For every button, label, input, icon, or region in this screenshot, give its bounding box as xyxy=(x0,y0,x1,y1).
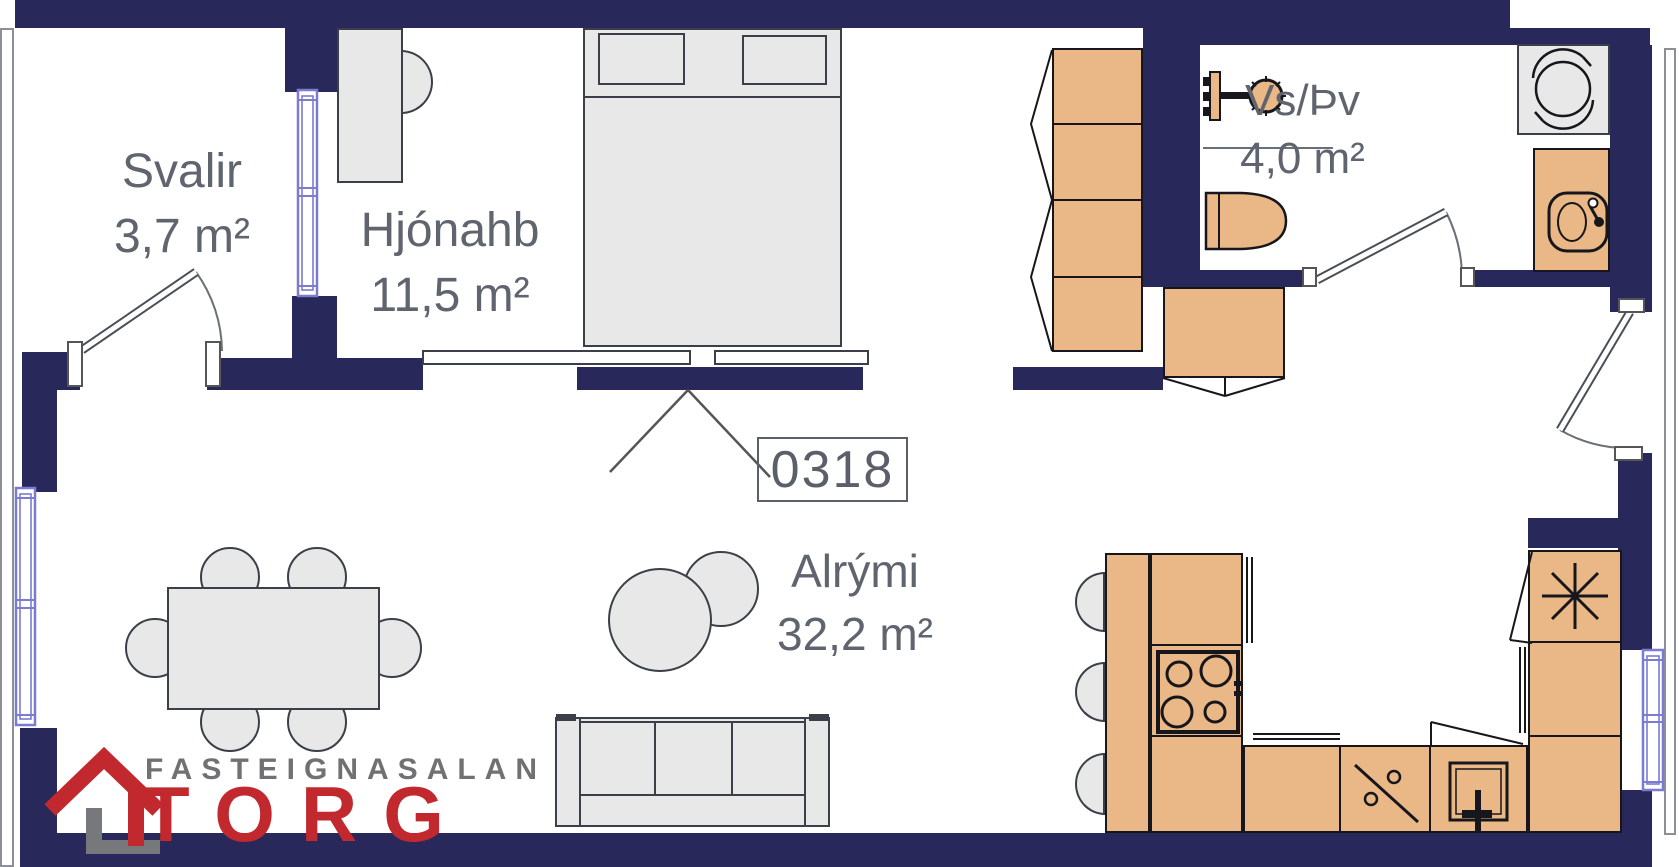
window-icon xyxy=(1643,650,1663,790)
wall-bottom xyxy=(55,833,1652,867)
entry-door-icon xyxy=(1560,299,1644,460)
kitchen-counter-left-column xyxy=(1150,553,1243,833)
room-label-hjonahb: Hjónahb 11,5 m² xyxy=(330,198,570,328)
bar-stool xyxy=(1075,572,1105,632)
unit-number-box: 0318 xyxy=(757,437,908,502)
unit-number: 0318 xyxy=(771,441,895,499)
room-area: 32,2 m² xyxy=(735,603,975,666)
wall-right-mid xyxy=(1618,453,1652,650)
pillow xyxy=(598,33,685,85)
desk-chair xyxy=(401,50,433,114)
sofa xyxy=(555,717,830,827)
wardrobe xyxy=(1052,48,1143,352)
wall-bedroom-bottom-right xyxy=(1013,367,1163,390)
wall-bath-bottom-left xyxy=(1143,270,1315,287)
hall-cabinet-door-lines xyxy=(1163,378,1285,396)
room-area: 4,0 m² xyxy=(1195,130,1410,188)
room-label-vspv: Vs/Þv 4,0 m² xyxy=(1195,72,1410,188)
wall-top xyxy=(15,0,1510,28)
room-area: 3,7 m² xyxy=(62,204,302,269)
desk xyxy=(337,28,403,183)
wall-left-mid xyxy=(22,352,57,492)
kitchen-counter-right-column xyxy=(1528,550,1622,833)
wall-top-bath xyxy=(1143,28,1650,45)
wall-right-upper xyxy=(1610,45,1652,312)
room-name: Svalir xyxy=(62,139,302,204)
exterior-line-left xyxy=(0,28,14,867)
wall-bedroom-bath-divider xyxy=(1143,28,1200,273)
kitchen-counter-bottom-row xyxy=(1243,745,1528,833)
wall-stub-above-fridge xyxy=(1528,518,1622,548)
wall-balcony-bedroom-upper xyxy=(285,28,337,92)
room-name: Vs/Þv xyxy=(1195,72,1410,130)
wall-left-lower xyxy=(20,728,57,867)
room-name: Hjónahb xyxy=(330,198,570,263)
pillow xyxy=(742,35,827,85)
hall-cabinet xyxy=(1163,287,1285,378)
room-label-svalir: Svalir 3,7 m² xyxy=(62,139,302,269)
room-area: 11,5 m² xyxy=(330,263,570,328)
bathroom-sink-cabinet xyxy=(1533,148,1610,272)
window-icon xyxy=(16,488,35,725)
wall-under-bed xyxy=(577,367,863,390)
room-label-alrymi: Alrými 32,2 m² xyxy=(735,540,975,666)
pouf-large xyxy=(608,568,712,672)
balcony-door-icon xyxy=(68,272,222,386)
bathroom-door-icon xyxy=(1303,212,1474,286)
exterior-line-right xyxy=(1664,48,1676,835)
bar-stool xyxy=(1075,753,1105,815)
washing-machine xyxy=(1517,44,1610,135)
agency-tagline: FASTEIGNASALAN xyxy=(145,753,546,787)
room-name: Alrými xyxy=(735,540,975,603)
dining-table xyxy=(167,587,380,710)
floor-plan: Svalir 3,7 m² Hjónahb 11,5 m² Vs/Þv 4,0 … xyxy=(0,0,1679,867)
kitchen-bar-counter xyxy=(1105,553,1150,833)
bar-stool xyxy=(1075,662,1105,722)
toilet-icon xyxy=(1206,193,1286,249)
wall-living-top-left xyxy=(207,358,423,390)
